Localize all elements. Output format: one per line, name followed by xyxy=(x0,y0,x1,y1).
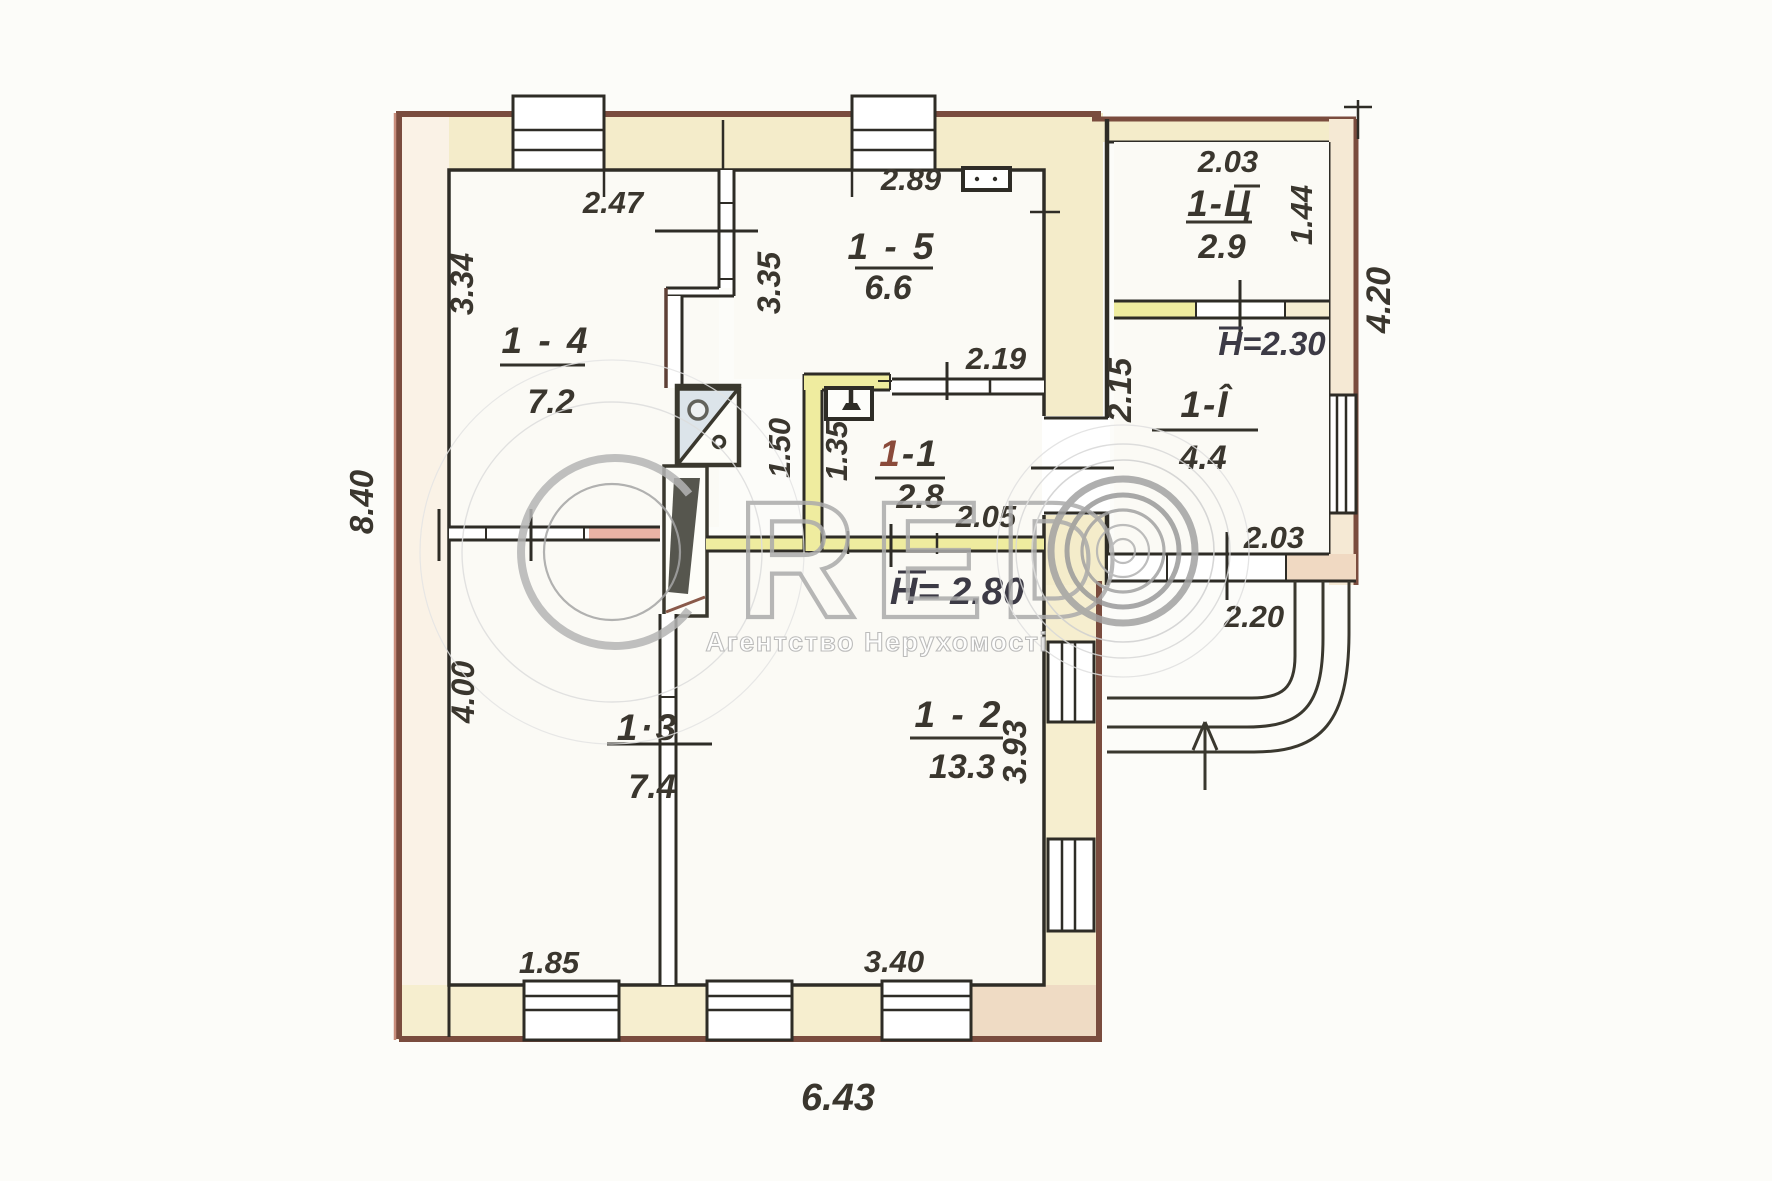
svg-text:4.20: 4.20 xyxy=(1360,267,1398,334)
svg-text:8.40: 8.40 xyxy=(343,469,380,534)
svg-text:Агентство Нерухомості: Агентство Нерухомості xyxy=(706,627,1049,657)
svg-text:4.00: 4.00 xyxy=(445,661,481,724)
svg-text:6.6: 6.6 xyxy=(864,269,912,307)
svg-text:1.85: 1.85 xyxy=(519,945,580,980)
svg-text:1 - 4: 1 - 4 xyxy=(501,320,590,361)
svg-text:1-Î: 1-Î xyxy=(1180,383,1233,425)
svg-text:4.4: 4.4 xyxy=(1178,439,1226,477)
svg-text:2.15: 2.15 xyxy=(1101,357,1138,423)
svg-text:1-Ц: 1-Ц xyxy=(1187,183,1253,224)
svg-text:2.03: 2.03 xyxy=(1243,520,1304,555)
svg-text:H=2.30: H=2.30 xyxy=(1218,325,1326,362)
svg-text:3.93: 3.93 xyxy=(996,720,1033,784)
svg-text:1 - 5: 1 - 5 xyxy=(847,226,936,267)
svg-text:3.34: 3.34 xyxy=(444,253,480,315)
svg-text:1.44: 1.44 xyxy=(1284,185,1319,245)
svg-text:3.40: 3.40 xyxy=(864,944,924,979)
svg-text:1 - 2: 1 - 2 xyxy=(914,694,1003,735)
svg-text:2.89: 2.89 xyxy=(880,162,942,197)
svg-text:2.19: 2.19 xyxy=(965,341,1027,376)
svg-text:13.3: 13.3 xyxy=(929,748,995,786)
svg-text:2.20: 2.20 xyxy=(1223,599,1284,634)
svg-text:2.9: 2.9 xyxy=(1197,228,1245,266)
svg-text:7.4: 7.4 xyxy=(628,768,675,806)
svg-text:3.35: 3.35 xyxy=(751,251,787,314)
svg-text:6.43: 6.43 xyxy=(801,1077,875,1119)
svg-text:1·3: 1·3 xyxy=(617,707,679,748)
svg-text:2.03: 2.03 xyxy=(1197,144,1258,179)
svg-text:2.47: 2.47 xyxy=(582,185,645,220)
